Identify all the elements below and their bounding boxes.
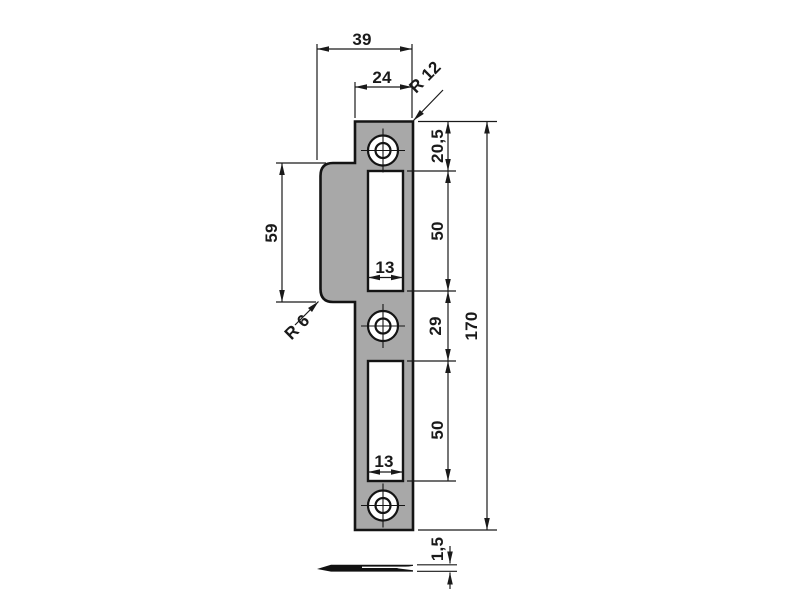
dim-lip-radius-label: R 6 <box>281 311 314 344</box>
dim-plate-width-label: 24 <box>372 68 392 87</box>
dim-top-offset-label: 20,5 <box>428 129 447 163</box>
dim-upper-slot-height-label: 50 <box>428 221 447 240</box>
dim-lower-slot-height-label: 50 <box>428 420 447 439</box>
dim-center-offset-label: 29 <box>426 316 445 335</box>
strike-plate-drawing: 39 24 R 12 R 6 59 20,5 50 13 29 50 13 17… <box>0 0 800 600</box>
front-view <box>321 122 414 531</box>
dim-corner-radius-label: R 12 <box>405 57 444 96</box>
dim-overall-height-label: 170 <box>462 312 481 341</box>
dim-lower-slot-width-label: 13 <box>374 452 393 471</box>
dim-overall-width-label: 39 <box>352 30 371 49</box>
dim-thickness-label: 1,5 <box>428 537 447 561</box>
side-view <box>317 565 413 572</box>
dim-upper-slot-width-label: 13 <box>375 258 394 277</box>
dim-lip-height-label: 59 <box>262 223 281 242</box>
